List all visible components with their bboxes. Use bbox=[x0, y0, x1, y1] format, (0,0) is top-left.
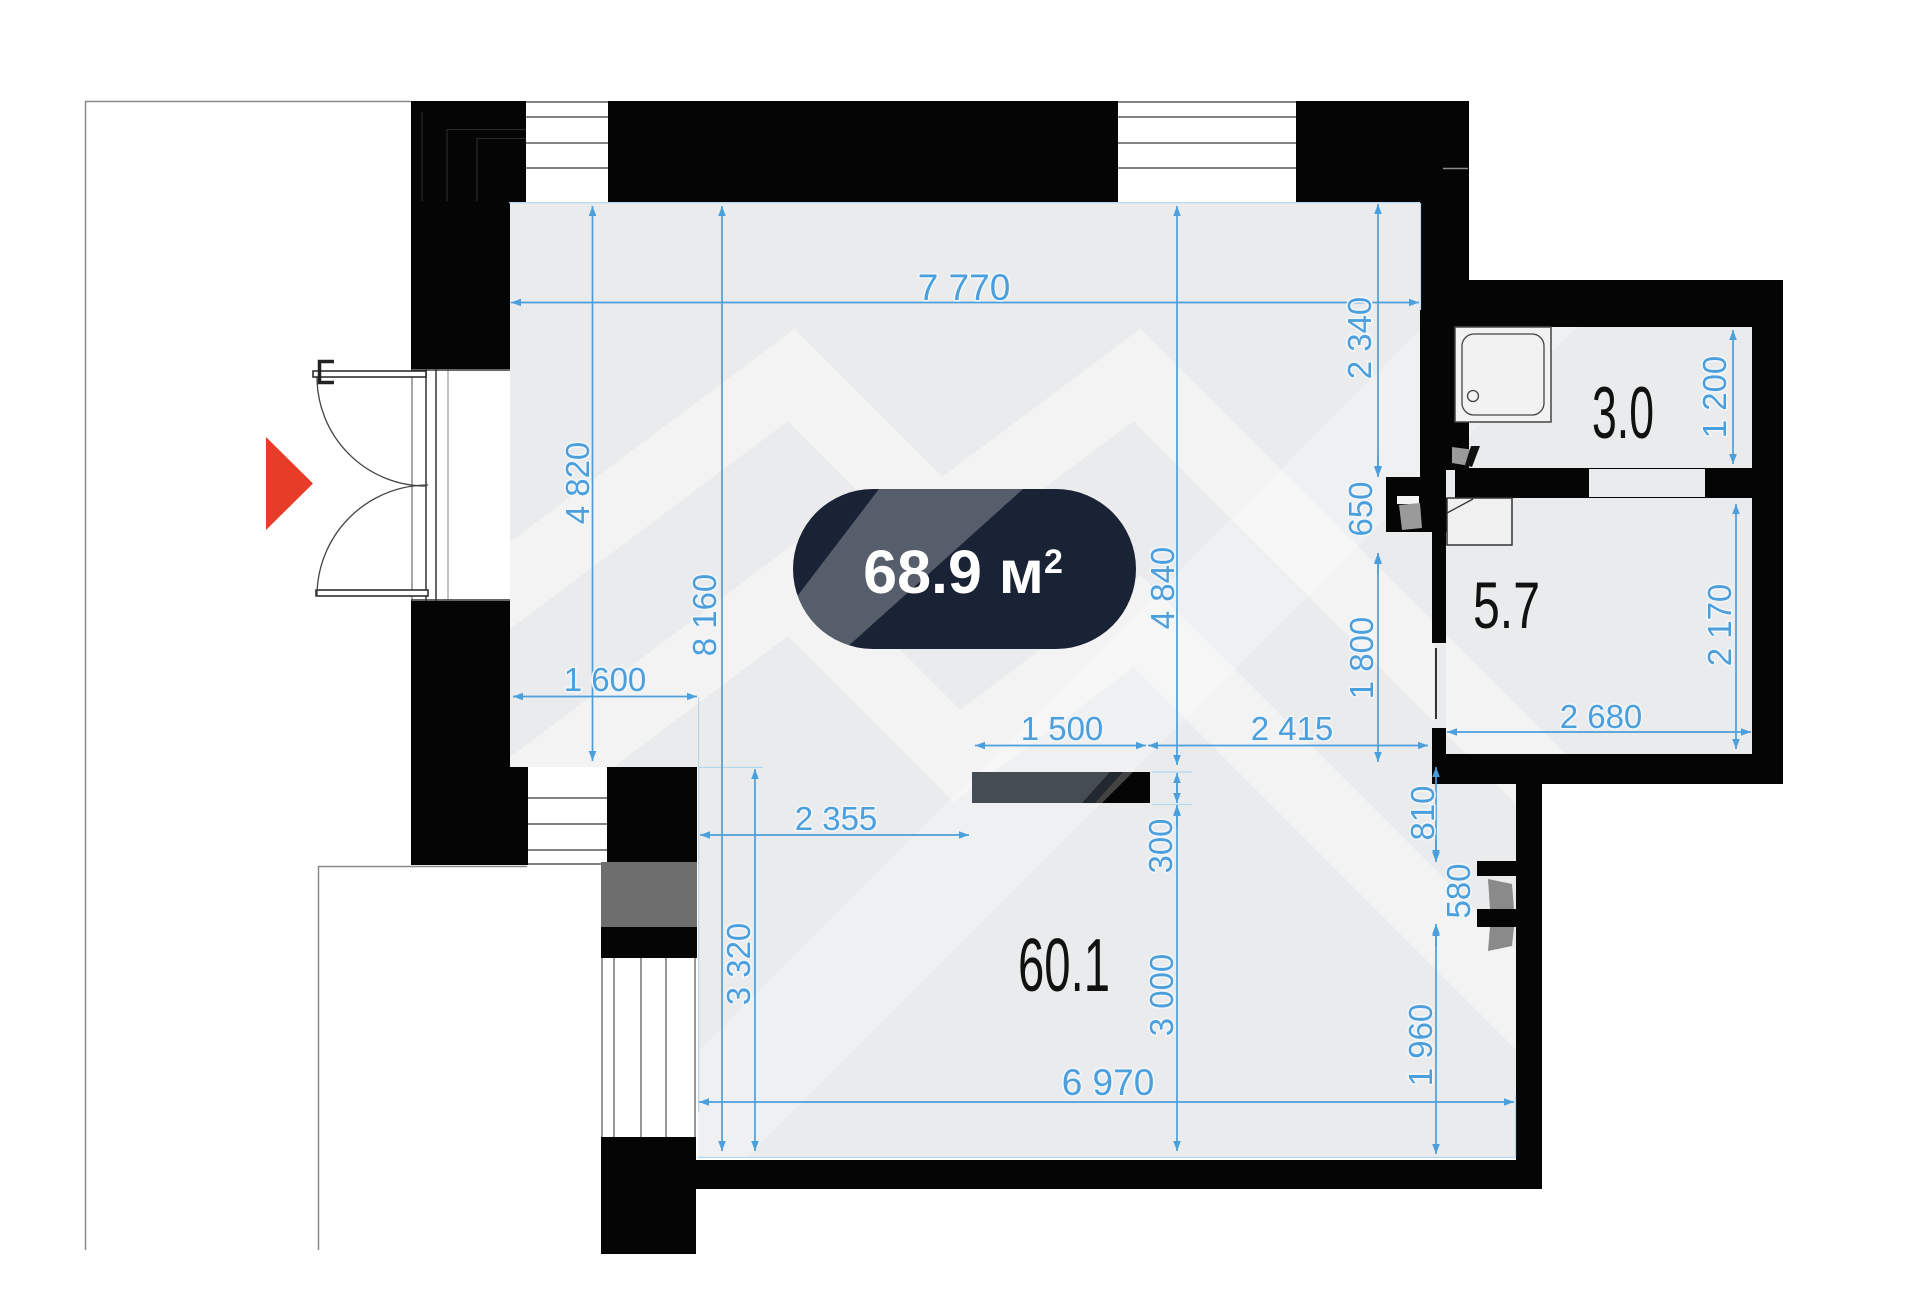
svg-text:2 415: 2 415 bbox=[1251, 710, 1334, 747]
svg-text:300: 300 bbox=[1142, 818, 1179, 873]
svg-text:68.9 м2: 68.9 м2 bbox=[863, 538, 1063, 606]
svg-text:2 340: 2 340 bbox=[1341, 297, 1378, 380]
svg-text:1 800: 1 800 bbox=[1343, 617, 1380, 700]
svg-text:8 160: 8 160 bbox=[686, 574, 723, 657]
svg-text:1 600: 1 600 bbox=[564, 661, 647, 698]
svg-text:6 970: 6 970 bbox=[1062, 1062, 1155, 1103]
svg-text:5.7: 5.7 bbox=[1473, 568, 1540, 642]
svg-text:3.0: 3.0 bbox=[1592, 373, 1654, 454]
svg-text:2 355: 2 355 bbox=[795, 800, 878, 837]
svg-text:3 000: 3 000 bbox=[1143, 954, 1180, 1037]
svg-text:1 500: 1 500 bbox=[1021, 710, 1104, 747]
svg-text:4 840: 4 840 bbox=[1144, 547, 1181, 630]
svg-text:580: 580 bbox=[1440, 863, 1477, 918]
svg-text:1 960: 1 960 bbox=[1402, 1004, 1439, 1087]
svg-text:1 200: 1 200 bbox=[1696, 356, 1733, 439]
svg-text:60.1: 60.1 bbox=[1018, 923, 1110, 1007]
svg-text:2 680: 2 680 bbox=[1560, 698, 1643, 735]
svg-text:650: 650 bbox=[1342, 481, 1379, 536]
svg-text:3 320: 3 320 bbox=[720, 923, 757, 1006]
svg-text:7 770: 7 770 bbox=[918, 267, 1011, 308]
svg-text:4 820: 4 820 bbox=[559, 442, 596, 525]
svg-text:2 170: 2 170 bbox=[1701, 584, 1738, 667]
svg-text:810: 810 bbox=[1404, 785, 1441, 840]
